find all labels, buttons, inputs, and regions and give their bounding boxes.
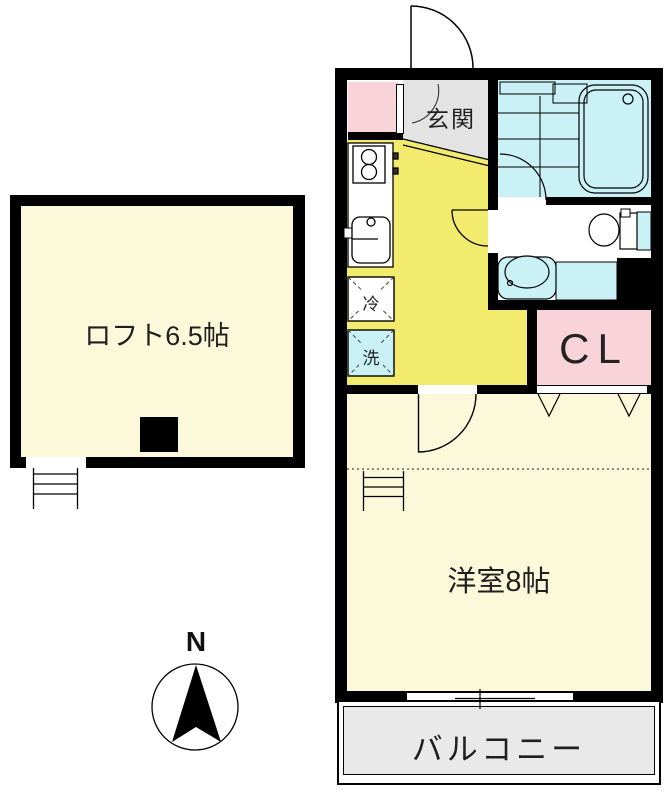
washer-label: 洗 (359, 344, 383, 369)
bathroom-area (498, 80, 651, 197)
western-room-floor (347, 394, 651, 691)
loft-label: ロフト6.5帖 (21, 314, 293, 353)
floor-plan-canvas: ロフト6.5帖 玄関 CL 洋室8帖 バルコニー 冷 洗 N (0, 0, 670, 794)
bathroom-door-opening (498, 197, 546, 205)
western-room-label: 洋室8帖 (347, 558, 651, 600)
closet-label: CL (537, 325, 651, 373)
balcony-label: バルコニー (343, 724, 655, 769)
loft-pillar (140, 417, 178, 452)
wall-washroom-closet (488, 300, 651, 310)
compass-north-label: N (166, 626, 226, 658)
entrance-door-icon (411, 6, 473, 68)
wall-kitchen-closet (527, 310, 537, 385)
washroom-door-opening (488, 210, 498, 253)
entrance-label: 玄関 (412, 100, 490, 134)
loft-ladder-icon (33, 468, 78, 509)
closet-opening (537, 385, 647, 394)
entrance-side-panel (396, 84, 404, 134)
compass-icon (152, 664, 238, 750)
loft-wall-opening (26, 457, 86, 468)
washroom-corner-wall (617, 258, 651, 300)
wall-under-shoe-cabinet (348, 132, 403, 140)
shoe-cabinet (348, 82, 398, 132)
fridge-label: 冷 (359, 290, 383, 315)
room-door-opening (418, 385, 477, 394)
compass-needle-icon (172, 665, 221, 742)
